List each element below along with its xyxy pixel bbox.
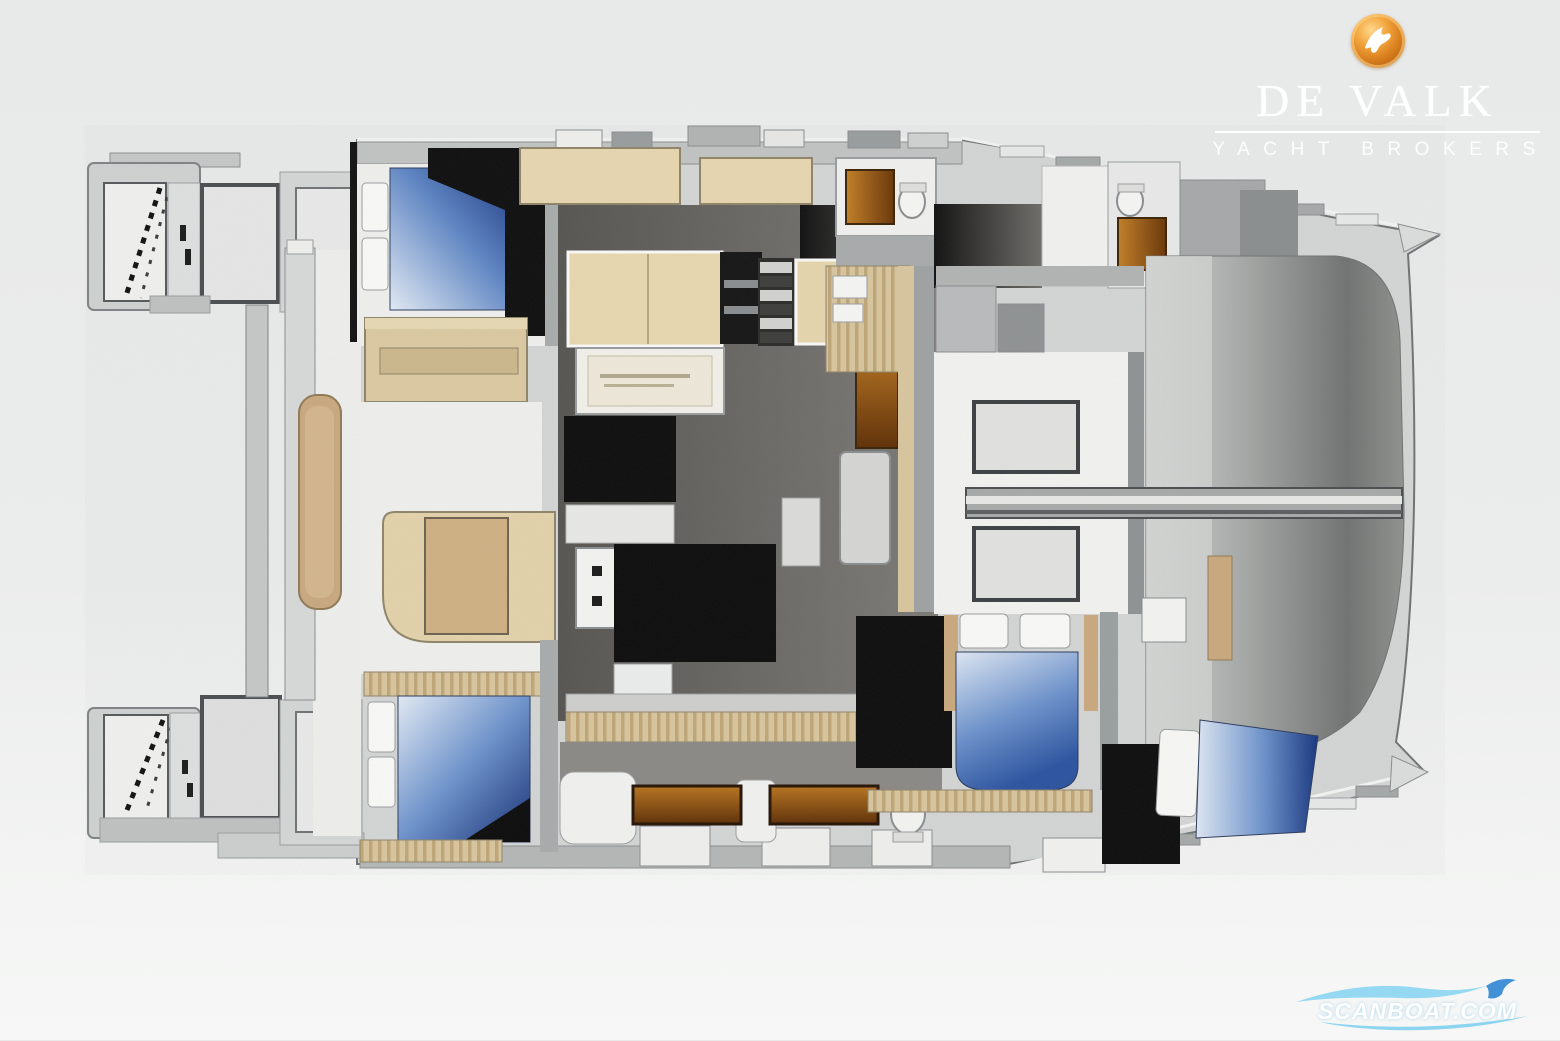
watermark-text: SCANBOAT.COM	[1318, 998, 1517, 1025]
page: { "page": { "background_color": "#ebecec…	[0, 0, 1560, 1040]
brand-tagline: YACHT BROKERS	[1211, 139, 1550, 161]
brand-divider	[1215, 131, 1540, 133]
brand-name: DE VALK	[1205, 78, 1550, 124]
scanboat-watermark: SCANBOAT.COM	[1290, 972, 1558, 1036]
falcon-sphere-icon	[1351, 14, 1405, 68]
grain-overlay	[85, 125, 1445, 875]
falcon-glyph	[1358, 21, 1398, 61]
wave-accent	[1486, 979, 1516, 999]
falcon-path	[1365, 27, 1391, 53]
brand-logo: DE VALK YACHT BROKERS	[1205, 14, 1550, 161]
